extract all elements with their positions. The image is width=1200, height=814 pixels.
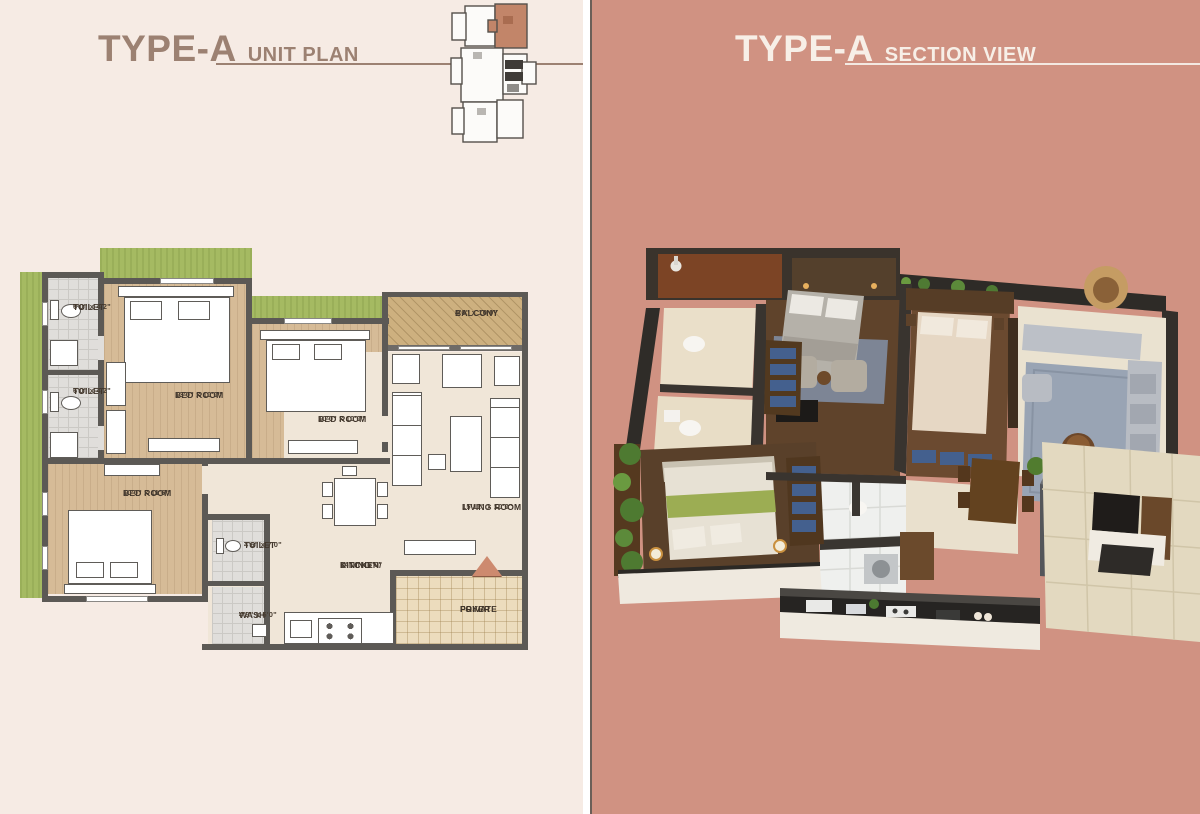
pillow <box>178 301 210 320</box>
right-title-type: TYPE-A <box>735 30 874 67</box>
tv-console <box>288 440 358 454</box>
wc-cistern <box>216 538 224 554</box>
dining-chair <box>377 482 388 497</box>
door-opening <box>98 426 104 450</box>
balcony-slider-window <box>460 346 512 350</box>
key-plan <box>443 0 540 148</box>
room-dims: 15'11" x 10'0" <box>462 502 513 511</box>
floor-plan: TOILET 6'0" x 4'2" TOILET 6'0" x 4'2" BE… <box>20 240 535 660</box>
bedroom-2-3d <box>894 284 1020 480</box>
window <box>160 278 214 284</box>
wash-basin <box>252 624 267 637</box>
room-dims: 4'9" x 5'0" <box>239 610 277 619</box>
wc-cistern <box>50 392 59 412</box>
right-title-underline <box>845 63 1200 65</box>
window <box>42 546 48 570</box>
pillow <box>272 344 300 360</box>
dining-chair <box>322 504 333 519</box>
wall <box>42 458 390 464</box>
dining-chair <box>377 504 388 519</box>
left-title: TYPE-A UNIT PLAN <box>98 30 359 67</box>
room-dims: 13'0" x 10'0" <box>175 390 222 399</box>
wc-cistern <box>50 300 59 320</box>
shower-cubicle <box>50 340 78 366</box>
wall <box>390 570 528 576</box>
panel-divider-line <box>590 0 592 814</box>
left-title-subtitle: UNIT PLAN <box>248 45 359 65</box>
wall <box>202 644 528 650</box>
wardrobe <box>106 362 126 406</box>
wall <box>208 514 270 520</box>
sofa <box>490 398 520 498</box>
garden-strip-top-1 <box>100 248 252 278</box>
entrance-3d <box>1042 442 1200 642</box>
room-dims: 6'0" x 4'2" <box>73 302 111 311</box>
wall <box>246 278 252 464</box>
tv-console <box>148 438 220 452</box>
coffee-table <box>450 416 482 472</box>
side-table <box>392 354 420 384</box>
window <box>42 492 48 516</box>
wc-bowl <box>225 540 241 552</box>
room-dims: 4'6" x 7'0" <box>244 540 282 549</box>
door-opening <box>98 336 104 360</box>
wardrobe <box>106 410 126 454</box>
wall <box>42 272 104 278</box>
window <box>86 596 148 602</box>
dining-chair <box>342 466 357 476</box>
private-foyer-floor <box>396 576 522 644</box>
panel-divider <box>583 0 590 814</box>
pillow <box>130 301 162 320</box>
balcony-floor <box>388 297 523 345</box>
stool <box>428 454 446 470</box>
room-name: FOYER <box>460 604 490 615</box>
stove <box>318 618 362 644</box>
sofa <box>392 392 422 486</box>
tv-unit <box>404 540 476 555</box>
window <box>284 318 332 324</box>
room-dims: 10'0" x 10'0" <box>318 414 365 423</box>
left-title-type: TYPE-A <box>98 30 237 67</box>
bedroom-3-3d <box>640 442 824 582</box>
pillow <box>314 344 342 360</box>
pillow <box>110 562 138 578</box>
window <box>42 302 48 326</box>
balcony-plants-3d <box>613 443 644 576</box>
side-table <box>494 356 520 386</box>
kitchen-sink <box>290 620 312 638</box>
tv-console <box>104 464 160 476</box>
wall <box>48 370 98 375</box>
balcony-slider-window <box>398 346 450 350</box>
brochure-spread: TYPE-A UNIT PLAN TYPE-A SECTION VIEW <box>0 0 1200 814</box>
section-view-3d <box>606 244 1200 656</box>
room-dims: 14'0" x 8'0" <box>340 560 382 569</box>
bed-headboard <box>118 286 234 297</box>
bed-headboard <box>64 584 156 594</box>
entry-arrow <box>472 556 502 576</box>
pillow <box>76 562 104 578</box>
armchair <box>442 354 482 388</box>
shower-cubicle <box>50 432 78 458</box>
wall <box>388 292 523 297</box>
wall <box>208 581 266 586</box>
room-dims: 6'0" x 4'2" <box>73 386 111 395</box>
window <box>42 390 48 414</box>
dining-chair <box>322 482 333 497</box>
right-title-subtitle: SECTION VIEW <box>885 45 1037 65</box>
room-dims: 10'0" x 11'6" <box>123 488 169 497</box>
door-opening <box>202 466 208 494</box>
bed-headboard <box>260 330 370 340</box>
wall <box>522 292 528 644</box>
wc-bowl <box>61 396 81 410</box>
room-dims: 4'0" x 10'0" <box>455 308 497 317</box>
dining-table <box>334 478 376 526</box>
door-opening <box>382 416 388 442</box>
right-title: TYPE-A SECTION VIEW <box>735 30 1036 67</box>
